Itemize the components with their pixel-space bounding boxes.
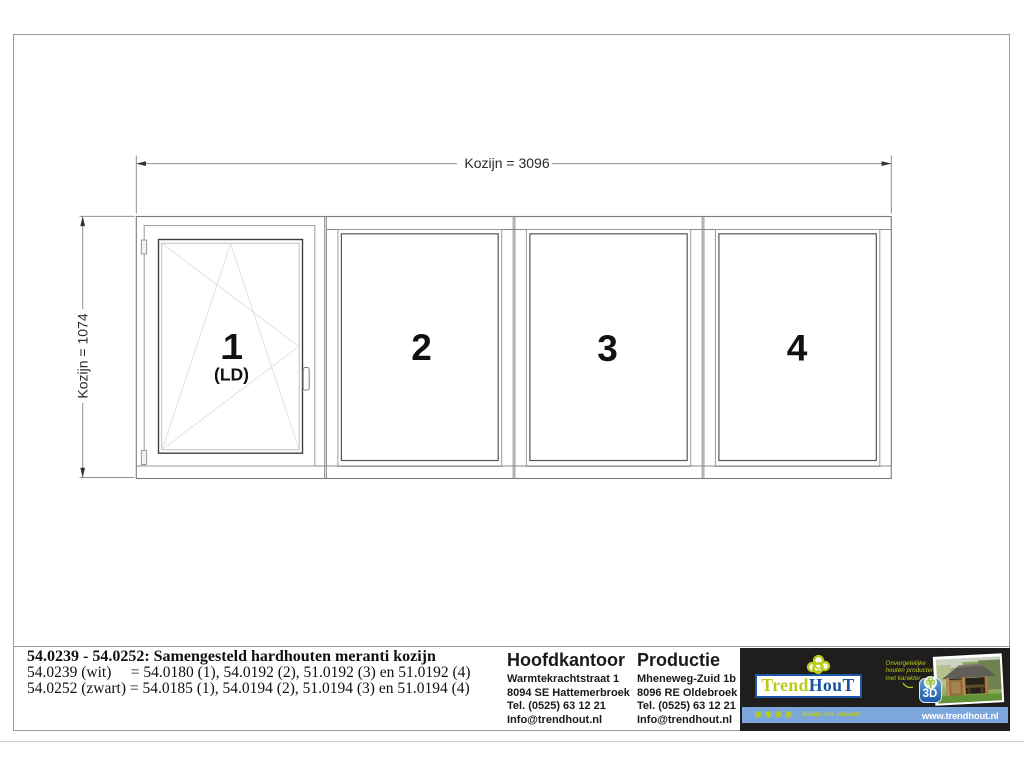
svg-text:Kozijn = 1074: Kozijn = 1074 <box>75 313 91 398</box>
svg-text:(LD): (LD) <box>214 365 249 385</box>
svg-text:Kozijn = 3096: Kozijn = 3096 <box>464 155 549 171</box>
svg-text:2: 2 <box>411 327 432 368</box>
svg-text:4: 4 <box>787 328 808 369</box>
svg-text:3: 3 <box>597 328 618 369</box>
svg-text:1: 1 <box>223 326 243 367</box>
